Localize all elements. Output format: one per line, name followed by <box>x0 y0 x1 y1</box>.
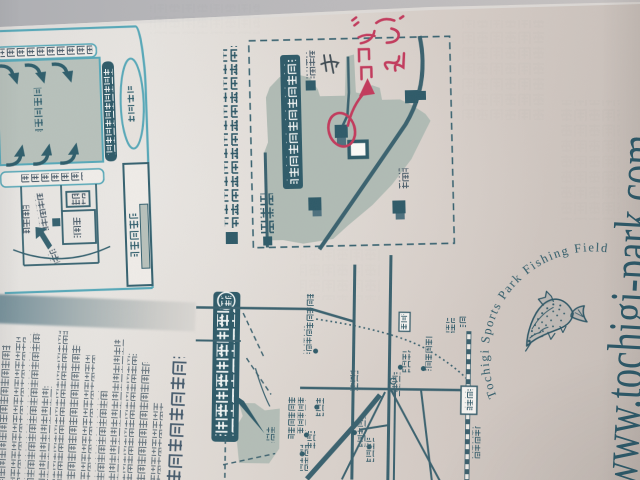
svg-text:www.tochigi-park.com: www.tochigi-park.com <box>590 133 640 480</box>
